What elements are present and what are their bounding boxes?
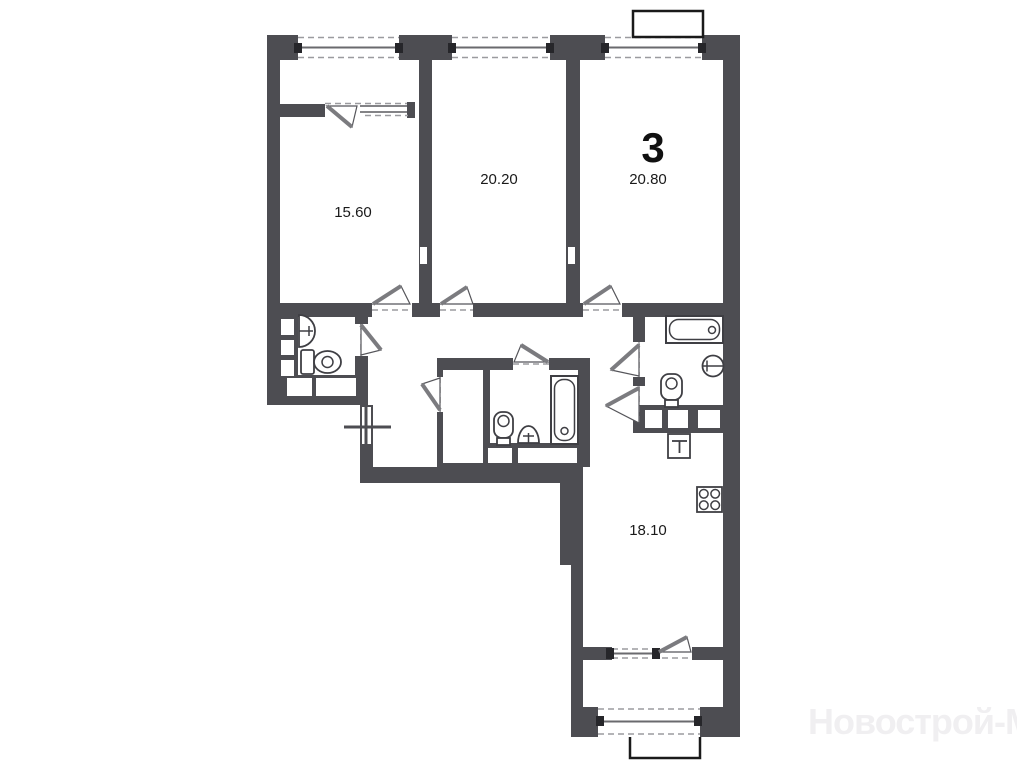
- door-room-3: [584, 286, 620, 304]
- balcony-top-railing: [633, 11, 703, 37]
- sink-icon-wc: [299, 315, 315, 347]
- door-alcove: [327, 106, 357, 127]
- utility-cross-mark: [344, 404, 391, 450]
- window-room-1: [294, 38, 403, 58]
- toilet-icon-wc: [301, 350, 341, 374]
- door-room-1: [373, 286, 410, 304]
- door-bathroom-middle: [514, 345, 548, 362]
- washer-icon: [668, 434, 690, 458]
- watermark: Новострой-М: [808, 701, 1017, 742]
- door-wc: [361, 325, 381, 355]
- floor-plan-canvas: 15.60 20.20 3 20.80 18.10 Новострой-М: [0, 0, 1017, 768]
- door-bathroom-right: [611, 345, 639, 376]
- door-closet: [422, 378, 440, 410]
- room-area-label-3: 20.80: [629, 171, 667, 188]
- bottom-window: [596, 709, 702, 734]
- bathtub-icon-bathroom-middle: [551, 376, 578, 444]
- door-room-2: [441, 287, 473, 304]
- stove-icon: [697, 487, 722, 512]
- toilet-icon-bathroom-right: [661, 374, 682, 407]
- sink-icon-bathroom-right: [703, 356, 724, 377]
- window-room-2: [448, 38, 554, 58]
- toilet-icon-bathroom-middle: [494, 412, 513, 445]
- kitchen-area-label: 18.10: [629, 522, 667, 539]
- room-area-label-2: 20.20: [480, 171, 518, 188]
- window-room-3: [601, 38, 706, 58]
- balcony-door-unit: [606, 637, 692, 659]
- apartment-number-label: 3: [641, 124, 664, 171]
- floor-plan-drawing: 15.60 20.20 3 20.80 18.10 Новострой-М: [0, 0, 1017, 768]
- room-area-label-1: 15.60: [334, 204, 372, 221]
- bathtub-icon-bathroom-right: [666, 316, 723, 343]
- door-kitchen-passage: [606, 388, 639, 423]
- sink-icon-bathroom-middle: [518, 426, 539, 443]
- balcony-bottom-railing: [630, 737, 700, 758]
